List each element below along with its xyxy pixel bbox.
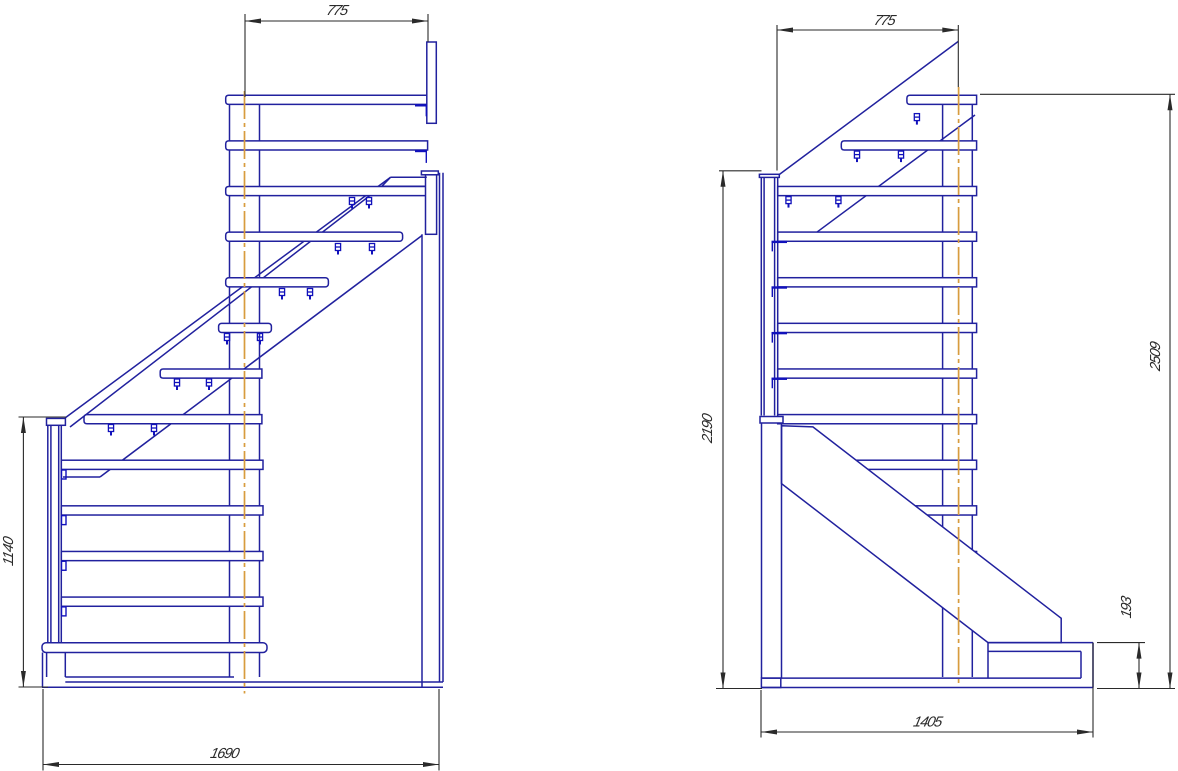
svg-text:775: 775 [872,13,898,29]
svg-text:775: 775 [325,3,351,19]
svg-text:1140: 1140 [1,534,17,567]
svg-text:193: 193 [1119,594,1135,620]
svg-text:2509: 2509 [1148,340,1164,373]
svg-text:2190: 2190 [700,411,716,445]
svg-text:1405: 1405 [912,715,945,731]
svg-text:1690: 1690 [209,746,242,762]
